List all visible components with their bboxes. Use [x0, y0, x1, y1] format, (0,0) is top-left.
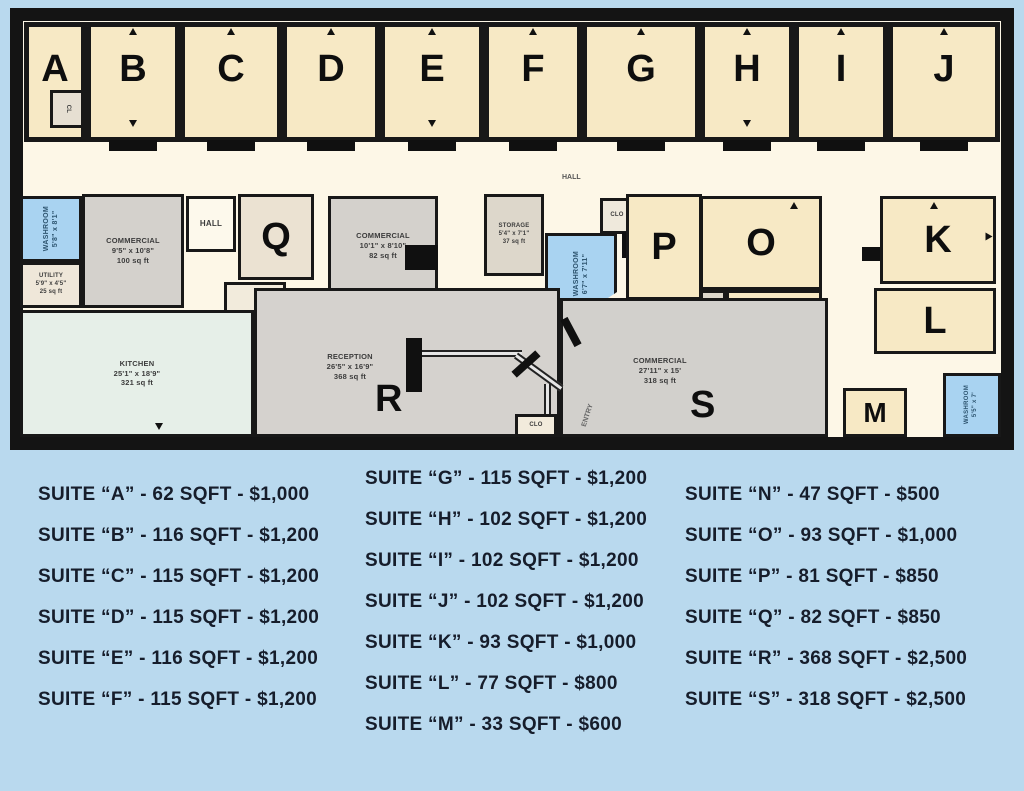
- suite-i: I: [794, 22, 888, 142]
- door-arrow-icon: [637, 28, 645, 35]
- suite-g: G: [582, 22, 700, 142]
- suite-g-label: G: [626, 50, 656, 88]
- washroom-left-label: WASHROOM5'8" x 8'1": [42, 206, 60, 251]
- utility-room: UTILITY5'9" x 4'5"25 sq ft: [20, 262, 82, 308]
- suite-m-label: M: [863, 399, 886, 427]
- suite-c-label: C: [217, 50, 244, 88]
- storage-label: STORAGE5'4" x 7'1"37 sq ft: [499, 223, 530, 246]
- railing: [422, 350, 522, 357]
- suite-k: K: [880, 196, 996, 284]
- washroom-bottom-right: WASHROOM5'5" x 7': [943, 373, 1001, 437]
- door-arrow-icon: [986, 233, 993, 241]
- listings-column-1: SUITE “A” - 62 SQFT - $1,000 SUITE “B” -…: [38, 474, 319, 720]
- listing-line: SUITE “P” - 81 SQFT - $850: [685, 556, 967, 597]
- hall-corridor-label: HALL: [562, 174, 581, 181]
- suite-i-label: I: [836, 50, 847, 88]
- reception-label: RECEPTION26'5" x 16'9"368 sq ft: [295, 352, 405, 381]
- suite-d-label: D: [317, 50, 344, 88]
- listing-line: SUITE “R” - 368 SQFT - $2,500: [685, 638, 967, 679]
- washroom-left: WASHROOM5'8" x 8'1": [20, 196, 82, 262]
- suite-o: O: [700, 196, 822, 290]
- door-arrow-icon: [428, 28, 436, 35]
- listing-line: SUITE “G” - 115 SQFT - $1,200: [365, 458, 647, 499]
- listing-line: SUITE “S” - 318 SQFT - $2,500: [685, 679, 967, 720]
- listing-line: SUITE “C” - 115 SQFT - $1,200: [38, 556, 319, 597]
- suite-p: P: [626, 194, 702, 300]
- wall-block: [862, 247, 880, 261]
- door-threshold: [408, 140, 456, 151]
- suite-o-label: O: [746, 224, 776, 262]
- listing-line: SUITE “L” - 77 SQFT - $800: [365, 663, 647, 704]
- listing-line: SUITE “O” - 93 SQFT - $1,000: [685, 515, 967, 556]
- kitchen-label: KITCHEN25'1" x 18'9"321 sq ft: [114, 359, 161, 388]
- listing-line: SUITE “B” - 116 SQFT - $1,200: [38, 515, 319, 556]
- suite-r-label: R: [375, 380, 402, 418]
- door-arrow-icon: [790, 202, 798, 209]
- suite-e-label: E: [419, 50, 444, 88]
- door-arrow-icon: [155, 423, 163, 430]
- listing-line: SUITE “M” - 33 SQFT - $600: [365, 704, 647, 745]
- listings-column-3: SUITE “N” - 47 SQFT - $500 SUITE “O” - 9…: [685, 474, 967, 720]
- door-arrow-icon: [129, 28, 137, 35]
- door-arrow-icon: [837, 28, 845, 35]
- listing-line: SUITE “A” - 62 SQFT - $1,000: [38, 474, 319, 515]
- suite-j: J: [888, 22, 1000, 142]
- suite-a-label: A: [41, 50, 68, 88]
- door-arrow-icon: [743, 28, 751, 35]
- wall-block: [405, 245, 438, 270]
- listing-line: SUITE “I” - 102 SQFT - $1,200: [365, 540, 647, 581]
- listing-line: SUITE “J” - 102 SQFT - $1,200: [365, 581, 647, 622]
- suite-c: C: [180, 22, 282, 142]
- door-arrow-icon: [529, 28, 537, 35]
- hall-small-label: HALL: [200, 219, 222, 229]
- suite-j-label: J: [933, 50, 954, 88]
- utility-label: UTILITY5'9" x 4'5"25 sq ft: [36, 273, 67, 296]
- door-threshold: [817, 140, 865, 151]
- suite-b-label: B: [119, 50, 146, 88]
- door-arrow-icon: [743, 120, 751, 127]
- washroom-mid-label: WASHROOM6'7" x 7'11": [572, 251, 590, 296]
- listing-line: SUITE “K” - 93 SQFT - $1,000: [365, 622, 647, 663]
- listing-line: SUITE “H” - 102 SQFT - $1,200: [365, 499, 647, 540]
- storage-room: STORAGE5'4" x 7'1"37 sq ft: [484, 194, 544, 276]
- cl-closet-label: CL: [63, 105, 71, 113]
- kitchen: KITCHEN25'1" x 18'9"321 sq ft: [20, 310, 254, 437]
- listing-line: SUITE “N” - 47 SQFT - $500: [685, 474, 967, 515]
- cl-closet: CL: [50, 90, 84, 128]
- commercial-s-label: COMMERCIAL27'11" x 15'318 sq ft: [605, 356, 715, 385]
- commercial-left-label: COMMERCIAL9'5" x 10'8"100 sq ft: [106, 236, 160, 265]
- clo-bottom: CLO: [515, 414, 557, 437]
- suite-q: Q: [238, 194, 314, 280]
- door-threshold: [723, 140, 771, 151]
- door-arrow-icon: [428, 120, 436, 127]
- door-threshold: [920, 140, 968, 151]
- suite-q-label: Q: [261, 218, 291, 256]
- suite-k-label: K: [924, 221, 951, 259]
- listing-line: SUITE “Q” - 82 SQFT - $850: [685, 597, 967, 638]
- hall-small: HALL: [186, 196, 236, 252]
- floor-plan: A B C D E F G H I J CL HALL WASHROOM5'8"…: [10, 8, 1014, 450]
- door-arrow-icon: [930, 202, 938, 209]
- suite-f: F: [484, 22, 582, 142]
- door-threshold: [617, 140, 665, 151]
- door-threshold: [109, 140, 157, 151]
- suite-f-label: F: [521, 50, 544, 88]
- door-arrow-icon: [940, 28, 948, 35]
- railing: [544, 384, 551, 418]
- door-threshold: [207, 140, 255, 151]
- suite-s-label: S: [690, 386, 715, 424]
- suite-d: D: [282, 22, 380, 142]
- suite-l-label: L: [923, 302, 946, 340]
- listing-line: SUITE “D” - 115 SQFT - $1,200: [38, 597, 319, 638]
- clo-top-label: CLO: [610, 212, 623, 220]
- suite-p-label: P: [651, 228, 676, 266]
- commercial-left: COMMERCIAL9'5" x 10'8"100 sq ft: [82, 194, 184, 308]
- clo-bottom-label: CLO: [529, 422, 542, 430]
- door-arrow-icon: [129, 120, 137, 127]
- listing-line: SUITE “E” - 116 SQFT - $1,200: [38, 638, 319, 679]
- door-arrow-icon: [227, 28, 235, 35]
- washroom-br-label: WASHROOM5'5" x 7': [964, 385, 980, 424]
- listing-line: SUITE “F” - 115 SQFT - $1,200: [38, 679, 319, 720]
- commercial-mid-label: COMMERCIAL10'1" x 8'10"82 sq ft: [356, 231, 410, 260]
- door-threshold: [509, 140, 557, 151]
- wall-block: [406, 338, 422, 392]
- door-threshold: [307, 140, 355, 151]
- suite-h-label: H: [733, 50, 760, 88]
- suite-l: L: [874, 288, 996, 354]
- listings-column-2: SUITE “G” - 115 SQFT - $1,200 SUITE “H” …: [365, 458, 647, 745]
- door-arrow-icon: [327, 28, 335, 35]
- suite-m: M: [843, 388, 907, 437]
